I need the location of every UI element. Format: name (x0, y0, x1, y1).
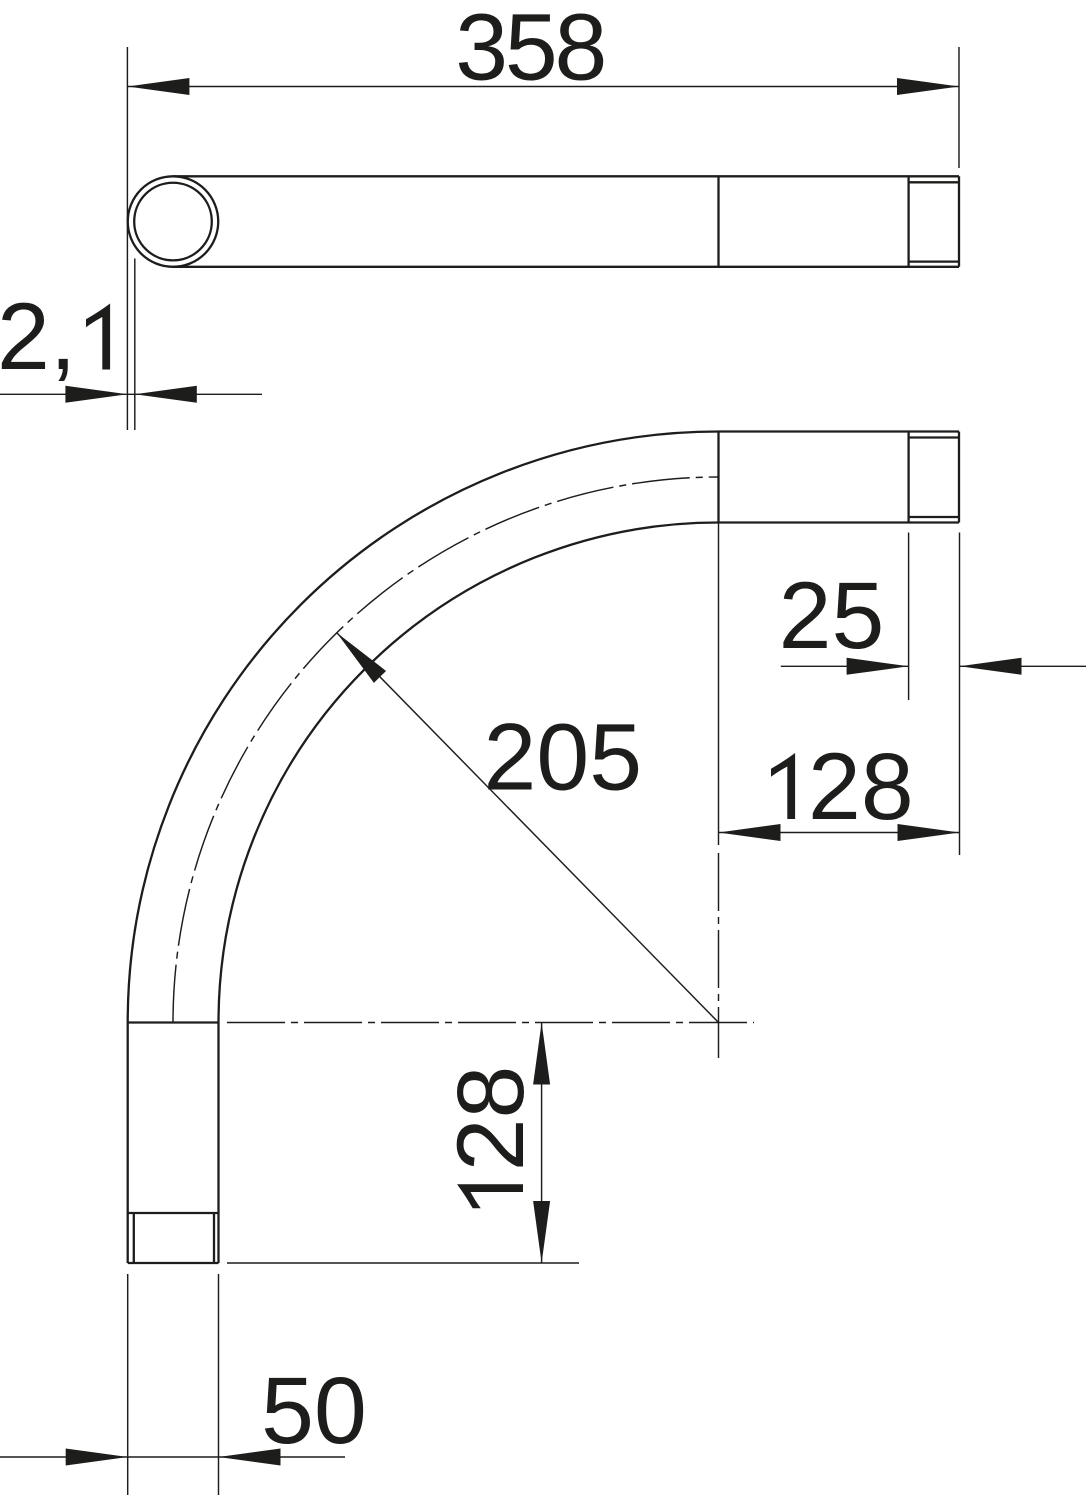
svg-text:50: 50 (261, 1358, 367, 1464)
svg-text:205: 205 (484, 704, 643, 810)
svg-text:28: 28 (438, 1066, 544, 1172)
svg-text:2,: 2, (0, 284, 76, 390)
svg-text:25: 25 (779, 563, 885, 669)
svg-text:28: 28 (808, 734, 914, 840)
svg-text:358: 358 (455, 0, 607, 101)
